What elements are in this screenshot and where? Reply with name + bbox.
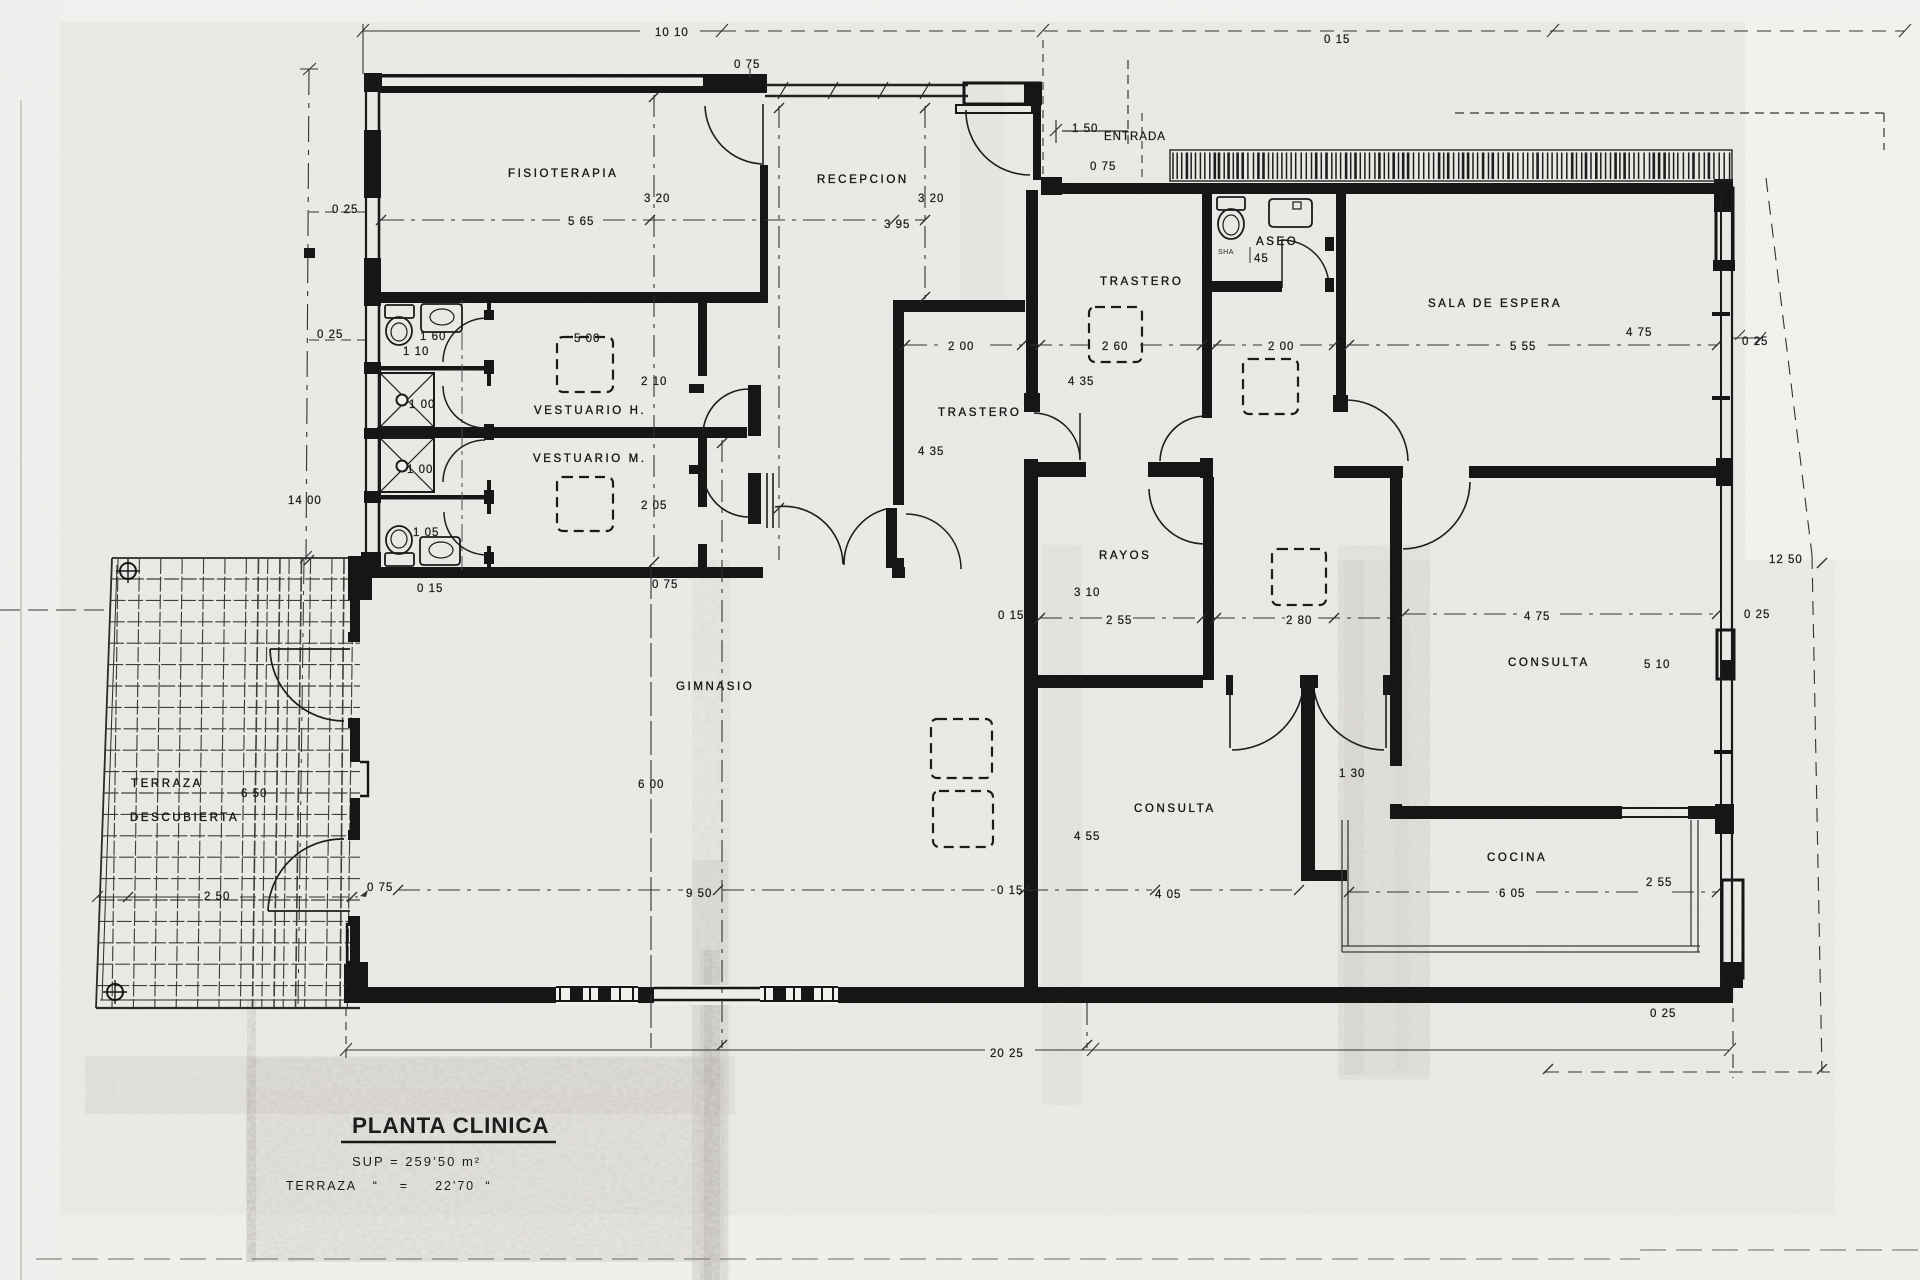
svg-text:3 95: 3 95: [884, 219, 910, 231]
svg-text:12 50: 12 50: [1769, 554, 1803, 566]
svg-text:2 55: 2 55: [1106, 615, 1132, 627]
svg-text:1 00: 1 00: [409, 399, 435, 411]
svg-text:9 50: 9 50: [686, 888, 712, 900]
svg-text:1 60: 1 60: [420, 331, 446, 343]
svg-text:1 00: 1 00: [407, 464, 433, 476]
svg-text:1 05: 1 05: [413, 527, 439, 539]
svg-text:4 75: 4 75: [1524, 611, 1550, 623]
svg-text:1 30: 1 30: [1339, 768, 1365, 780]
svg-text:2 00: 2 00: [1268, 341, 1294, 353]
svg-text:5 65: 5 65: [568, 216, 594, 228]
svg-text:6 05: 6 05: [1499, 888, 1525, 900]
svg-text:4 75: 4 75: [1626, 327, 1652, 339]
svg-text:0 15: 0 15: [417, 583, 443, 595]
svg-text:TRASTERO: TRASTERO: [1100, 276, 1183, 288]
svg-text:SUP = 259’50 m²: SUP = 259’50 m²: [352, 1154, 481, 1169]
svg-text:4 35: 4 35: [918, 446, 944, 458]
svg-text:0 75: 0 75: [1090, 161, 1116, 173]
svg-text:6 00: 6 00: [638, 779, 664, 791]
svg-text:CONSULTA: CONSULTA: [1508, 657, 1590, 669]
svg-text:0 15: 0 15: [997, 885, 1023, 897]
svg-text:4 55: 4 55: [1074, 831, 1100, 843]
svg-text:2 60: 2 60: [1102, 341, 1128, 353]
svg-text:0 75: 0 75: [734, 59, 760, 71]
svg-text:0 25: 0 25: [317, 329, 343, 341]
svg-text:5 00: 5 00: [574, 333, 600, 345]
svg-text:SALA DE ESPERA: SALA DE ESPERA: [1428, 298, 1562, 310]
svg-text:0 75: 0 75: [367, 882, 393, 894]
svg-text:RECEPCION: RECEPCION: [817, 174, 909, 186]
svg-text:ENTRADA: ENTRADA: [1104, 131, 1166, 143]
svg-text:2 80: 2 80: [1286, 615, 1312, 627]
svg-text:0 15: 0 15: [998, 610, 1024, 622]
svg-text:VESTUARIO M.: VESTUARIO M.: [533, 453, 647, 465]
svg-text:FISIOTERAPIA: FISIOTERAPIA: [508, 168, 618, 180]
svg-text:TRASTERO: TRASTERO: [938, 407, 1021, 419]
svg-text:2 05: 2 05: [641, 500, 667, 512]
svg-text:0 15: 0 15: [1324, 34, 1350, 46]
svg-text:2 50: 2 50: [204, 891, 230, 903]
svg-text:0 25: 0 25: [1742, 336, 1768, 348]
svg-text:4 05: 4 05: [1155, 889, 1181, 901]
svg-text:RAYOS: RAYOS: [1099, 550, 1151, 562]
svg-text:14 00: 14 00: [288, 495, 322, 507]
svg-text:0 75: 0 75: [652, 579, 678, 591]
svg-text:0 25: 0 25: [332, 204, 358, 216]
svg-text:TERRAZA: TERRAZA: [131, 778, 203, 790]
svg-text:CONSULTA: CONSULTA: [1134, 803, 1216, 815]
svg-text:20 25: 20 25: [990, 1048, 1024, 1060]
svg-text:6 50: 6 50: [241, 788, 267, 800]
svg-text:ASEO: ASEO: [1256, 236, 1298, 248]
svg-text:SHA: SHA: [1218, 249, 1234, 256]
svg-text:2 55: 2 55: [1646, 877, 1672, 889]
svg-text:45: 45: [1254, 253, 1269, 265]
svg-text:0 25: 0 25: [1650, 1008, 1676, 1020]
svg-text:DESCUBIERTA: DESCUBIERTA: [130, 812, 239, 824]
svg-text:1 50: 1 50: [1072, 123, 1098, 135]
svg-text:3 20: 3 20: [644, 193, 670, 205]
svg-text:5 10: 5 10: [1644, 659, 1670, 671]
svg-text:3 20: 3 20: [918, 193, 944, 205]
svg-text:2 00: 2 00: [948, 341, 974, 353]
svg-text:COCINA: COCINA: [1487, 852, 1547, 864]
svg-text:GIMNASIO: GIMNASIO: [676, 681, 754, 693]
svg-text:3 10: 3 10: [1074, 587, 1100, 599]
svg-text:TERRAZA “ = 22’70 “: TERRAZA “ = 22’70 “: [286, 1179, 491, 1193]
svg-text:PLANTA CLINICA: PLANTA CLINICA: [352, 1113, 549, 1138]
svg-text:0 25: 0 25: [1744, 609, 1770, 621]
svg-text:VESTUARIO H.: VESTUARIO H.: [534, 405, 646, 417]
svg-text:4 35: 4 35: [1068, 376, 1094, 388]
svg-text:2 10: 2 10: [641, 376, 667, 388]
svg-text:5 55: 5 55: [1510, 341, 1536, 353]
svg-text:1 10: 1 10: [403, 346, 429, 358]
svg-text:10 10: 10 10: [655, 27, 689, 39]
